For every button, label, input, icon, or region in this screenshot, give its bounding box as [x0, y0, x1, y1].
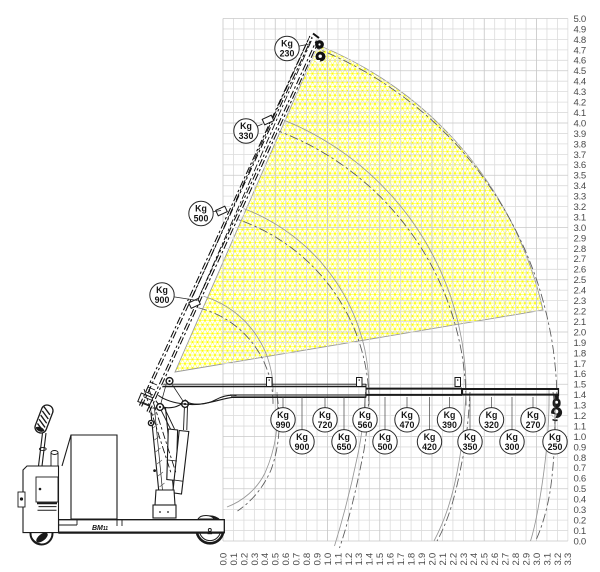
svg-text:1.4: 1.4 — [574, 390, 587, 401]
svg-text:0.4: 0.4 — [260, 552, 271, 565]
svg-text:Kg: Kg — [379, 432, 391, 442]
svg-text:2.0: 2.0 — [427, 553, 438, 565]
svg-text:320: 320 — [484, 420, 499, 430]
svg-text:2.9: 2.9 — [574, 233, 586, 244]
svg-text:Kg: Kg — [296, 432, 308, 442]
svg-text:Kg: Kg — [156, 285, 168, 295]
svg-text:1.3: 1.3 — [354, 553, 365, 565]
svg-text:2.5: 2.5 — [574, 275, 586, 286]
svg-text:1.3: 1.3 — [574, 401, 586, 412]
svg-text:3.3: 3.3 — [563, 553, 574, 565]
svg-text:0.9: 0.9 — [574, 442, 586, 453]
svg-text:1.8: 1.8 — [407, 553, 418, 565]
svg-text:4.6: 4.6 — [574, 56, 586, 67]
svg-text:0.8: 0.8 — [302, 553, 313, 565]
svg-text:Kg: Kg — [281, 39, 293, 49]
svg-text:0.5: 0.5 — [574, 484, 586, 495]
svg-text:3.1: 3.1 — [542, 553, 553, 565]
svg-text:3.3: 3.3 — [574, 192, 586, 203]
svg-text:0.8: 0.8 — [574, 453, 586, 464]
svg-text:Kg: Kg — [277, 410, 289, 420]
svg-text:3.0: 3.0 — [532, 553, 543, 565]
svg-text:3.7: 3.7 — [574, 150, 586, 161]
svg-text:2.7: 2.7 — [501, 553, 512, 565]
svg-text:3.2: 3.2 — [553, 553, 564, 565]
svg-text:0.0: 0.0 — [218, 553, 229, 565]
svg-text:Kg: Kg — [401, 410, 413, 420]
svg-text:330: 330 — [239, 131, 254, 141]
svg-text:4.5: 4.5 — [574, 66, 586, 77]
svg-text:1.7: 1.7 — [574, 359, 586, 370]
svg-text:0.9: 0.9 — [312, 553, 323, 565]
svg-text:4.2: 4.2 — [574, 98, 586, 109]
svg-text:Kg: Kg — [444, 410, 456, 420]
svg-text:1.1: 1.1 — [333, 553, 344, 565]
svg-text:1.0: 1.0 — [323, 553, 334, 565]
svg-text:1.9: 1.9 — [574, 338, 586, 349]
svg-text:2.4: 2.4 — [574, 286, 587, 297]
svg-text:2.1: 2.1 — [574, 317, 586, 328]
svg-text:1.5: 1.5 — [574, 380, 586, 391]
svg-text:Kg: Kg — [319, 410, 331, 420]
svg-text:2.8: 2.8 — [574, 244, 586, 255]
svg-text:Kg: Kg — [549, 432, 561, 442]
svg-text:1.6: 1.6 — [386, 553, 397, 565]
svg-text:390: 390 — [442, 420, 457, 430]
svg-text:1.0: 1.0 — [574, 432, 586, 443]
svg-text:0.6: 0.6 — [574, 474, 586, 485]
svg-text:Kg: Kg — [359, 410, 371, 420]
svg-text:Kg: Kg — [424, 432, 436, 442]
svg-text:4.1: 4.1 — [574, 108, 586, 119]
svg-text:4.9: 4.9 — [574, 24, 586, 35]
svg-text:0.5: 0.5 — [271, 553, 282, 565]
svg-text:2.7: 2.7 — [574, 254, 586, 265]
svg-text:Kg: Kg — [195, 204, 207, 214]
svg-text:0.2: 0.2 — [239, 553, 250, 565]
svg-text:0.3: 0.3 — [250, 553, 261, 565]
svg-text:1.8: 1.8 — [574, 348, 586, 359]
svg-text:Kg: Kg — [240, 121, 252, 131]
svg-text:900: 900 — [155, 295, 170, 305]
svg-text:0.3: 0.3 — [574, 505, 586, 516]
svg-text:2.0: 2.0 — [574, 327, 586, 338]
svg-text:3.0: 3.0 — [574, 223, 586, 234]
svg-text:BM11: BM11 — [92, 525, 108, 532]
svg-text:2.3: 2.3 — [459, 553, 470, 565]
svg-text:3.2: 3.2 — [574, 202, 586, 213]
svg-text:Kg: Kg — [506, 432, 518, 442]
svg-text:2.3: 2.3 — [574, 296, 586, 307]
svg-text:Kg: Kg — [527, 410, 539, 420]
svg-text:2.1: 2.1 — [438, 553, 449, 565]
svg-text:3.4: 3.4 — [574, 181, 587, 192]
svg-text:0.7: 0.7 — [292, 553, 303, 565]
svg-text:0.7: 0.7 — [574, 463, 586, 474]
svg-text:2.6: 2.6 — [490, 553, 501, 565]
svg-text:4.7: 4.7 — [574, 45, 586, 56]
svg-text:250: 250 — [548, 442, 563, 452]
svg-text:650: 650 — [337, 442, 352, 452]
svg-text:420: 420 — [422, 442, 437, 452]
svg-text:1.2: 1.2 — [344, 553, 355, 565]
svg-text:720: 720 — [318, 420, 333, 430]
svg-text:1.1: 1.1 — [574, 421, 586, 432]
svg-text:2.2: 2.2 — [574, 307, 586, 318]
svg-text:2.4: 2.4 — [469, 552, 480, 565]
svg-text:Kg: Kg — [464, 432, 476, 442]
svg-text:0.2: 0.2 — [574, 516, 586, 527]
svg-text:2.9: 2.9 — [521, 553, 532, 565]
svg-text:2.6: 2.6 — [574, 265, 586, 276]
svg-text:Kg: Kg — [338, 432, 350, 442]
svg-text:300: 300 — [505, 442, 520, 452]
svg-text:4.4: 4.4 — [574, 77, 587, 88]
svg-text:1.9: 1.9 — [417, 553, 428, 565]
svg-text:270: 270 — [526, 420, 541, 430]
svg-text:2.8: 2.8 — [511, 553, 522, 565]
svg-text:0.4: 0.4 — [574, 495, 587, 506]
svg-text:470: 470 — [400, 420, 415, 430]
svg-text:500: 500 — [194, 214, 209, 224]
svg-text:3.8: 3.8 — [574, 139, 586, 150]
svg-text:1.6: 1.6 — [574, 369, 586, 380]
svg-text:5.0: 5.0 — [574, 14, 586, 25]
svg-text:4.0: 4.0 — [574, 118, 586, 129]
svg-text:4.3: 4.3 — [574, 87, 586, 98]
svg-text:1.2: 1.2 — [574, 411, 586, 422]
svg-text:230: 230 — [280, 49, 295, 59]
svg-text:2.5: 2.5 — [480, 553, 491, 565]
svg-text:900: 900 — [295, 442, 310, 452]
svg-text:3.6: 3.6 — [574, 160, 586, 171]
svg-text:1.7: 1.7 — [396, 553, 407, 565]
svg-text:3.5: 3.5 — [574, 171, 586, 182]
svg-text:2.2: 2.2 — [448, 553, 459, 565]
svg-text:1.4: 1.4 — [365, 552, 376, 565]
svg-text:560: 560 — [358, 420, 373, 430]
svg-text:990: 990 — [276, 420, 291, 430]
svg-text:0.1: 0.1 — [229, 553, 240, 565]
svg-text:350: 350 — [463, 442, 478, 452]
svg-text:3.9: 3.9 — [574, 129, 586, 140]
svg-text:Kg: Kg — [486, 410, 498, 420]
svg-text:0.1: 0.1 — [574, 526, 586, 537]
svg-text:3.1: 3.1 — [574, 213, 586, 224]
svg-text:500: 500 — [378, 442, 393, 452]
svg-text:1.5: 1.5 — [375, 553, 386, 565]
svg-text:4.8: 4.8 — [574, 35, 586, 46]
svg-text:0.0: 0.0 — [574, 536, 586, 547]
svg-text:0.6: 0.6 — [281, 553, 292, 565]
